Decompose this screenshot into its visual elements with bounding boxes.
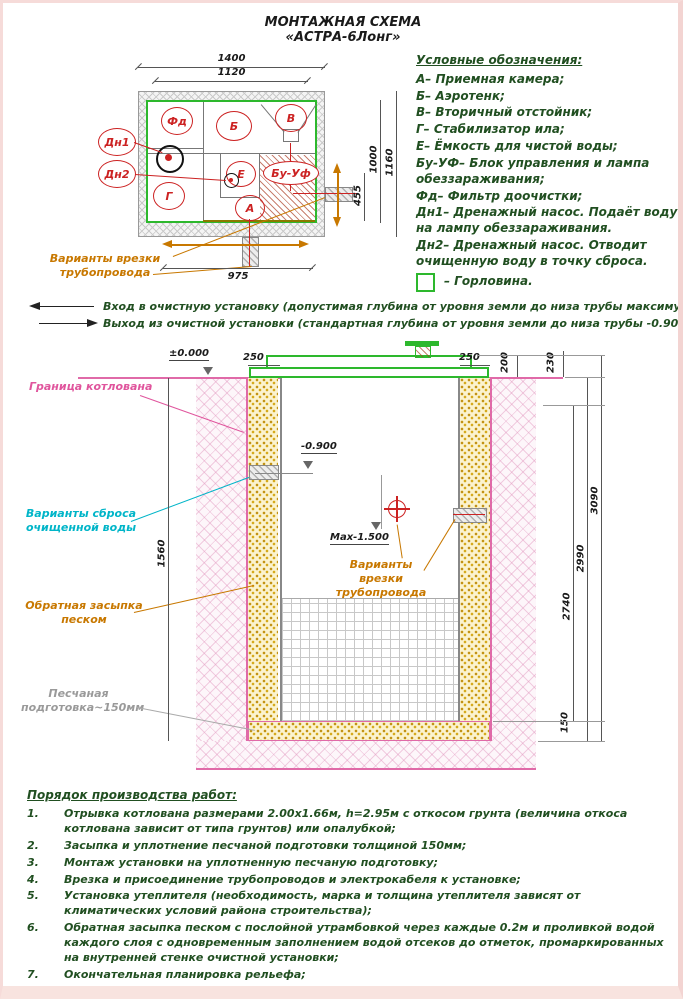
work-order-item: 1. Отрывка котлована размерами 2.00х1.66… — [27, 807, 667, 837]
dim-150: 150 — [560, 703, 571, 743]
dim-2740: 2740 — [562, 587, 573, 627]
label-sand-bed: Песчаная подготовка~150мм — [21, 687, 136, 715]
plan-pipe-stub-bottom — [242, 237, 259, 267]
legend-gorlovina-text: – Горловина. — [444, 274, 533, 290]
plan-pump2-dot — [229, 178, 233, 182]
label-sand-backfill: Обратная засыпка песком — [25, 599, 143, 627]
dim-tick — [304, 77, 311, 84]
level-mark-icon — [371, 522, 381, 530]
dim-1000: 1000 — [369, 140, 380, 180]
legend: Условные обозначения: А– Приемная камера… — [416, 53, 680, 292]
section-max-depth-ref-line — [381, 475, 382, 529]
item-text: Обратная засыпка песком с послойной утра… — [64, 921, 667, 966]
plan-callout-pipe-entry: Варианты врезки трубопровода — [35, 252, 175, 280]
section-tank-bottom-grid — [282, 598, 458, 721]
dim-line-2990 — [587, 377, 588, 741]
arrow-up-icon — [333, 163, 341, 173]
legend-item: Дн1– Дренажный насос. Подаёт воду на лам… — [416, 205, 680, 237]
legend-item: В– Вторичный отстойник; — [416, 105, 680, 121]
installation-scheme-page: МОНТАЖНАЯ СХЕМА «АСТРА-6Лонг» Фд Б В Г Е… — [0, 0, 683, 999]
plan-arrow-vert-line — [337, 170, 339, 219]
pipe-entry-crosshair-icon — [388, 500, 406, 518]
legend-item: Г– Стабилизатор ила; — [416, 122, 680, 138]
ext-line-ground — [565, 377, 605, 378]
dim-250-right: 250 — [459, 352, 480, 363]
legend-gorlovina-row: – Горловина. — [416, 273, 680, 292]
plan-label-a: А — [235, 195, 265, 221]
dim-line-250-right — [460, 365, 490, 366]
plan-label-a-text: А — [246, 202, 255, 215]
work-order-item: 7. Окончательная планировка рельефа; — [27, 968, 667, 983]
dim-455: 455 — [353, 176, 364, 216]
ext-line-lid-top — [477, 355, 605, 356]
outlet-note: Выход из очистной установки (стандартная… — [103, 317, 683, 330]
label-pit-boundary: Граница котлована — [29, 380, 152, 394]
work-order-title: Порядок производства работ: — [27, 787, 667, 803]
item-number: 6. — [27, 921, 64, 966]
plan-label-g: Г — [153, 182, 185, 210]
dim-line-3090 — [601, 355, 602, 741]
dim-tick — [321, 63, 328, 70]
plan-label-dn1: Дн1 — [98, 128, 136, 156]
section-soil-right — [490, 378, 536, 770]
ext-line-tank-bottom — [493, 721, 605, 722]
item-text: Отрывка котлована размерами 2.00х1.66м, … — [64, 807, 667, 837]
outlet-arrow-icon — [87, 319, 98, 327]
plan-label-buuf-text: Бу-Уф — [271, 167, 311, 180]
dim-975: 975 — [163, 271, 313, 282]
dim-line-200 — [517, 355, 518, 377]
dim-3090: 3090 — [590, 481, 601, 521]
work-order-item: 6. Обратная засыпка песком с послойной у… — [27, 921, 667, 966]
level-max-1500: Max-1.500 — [330, 532, 389, 545]
dim-1160: 1160 — [385, 143, 396, 183]
section-inlet-pipe-axis — [453, 514, 485, 515]
legend-item: Бу-УФ– Блок управления и лампа обеззараж… — [416, 156, 680, 188]
inlet-note: Вход в очистную установку (допустимая гл… — [103, 300, 683, 313]
item-number: 5. — [27, 889, 64, 919]
dim-230: 230 — [546, 343, 557, 383]
item-number: 1. — [27, 807, 64, 837]
plan-label-v: В — [275, 104, 307, 132]
level-mark-icon — [303, 461, 313, 469]
dim-line-2740 — [573, 405, 574, 721]
ext-line-lid-bottom — [543, 405, 605, 406]
plan-pump1-dot — [165, 154, 172, 161]
item-text: Врезка и присоединение трубопроводов и э… — [64, 873, 667, 888]
item-text: Установка утеплителя (необходимость, мар… — [64, 889, 667, 919]
section-sand-bed — [248, 721, 490, 741]
outlet-arrow-line — [39, 323, 87, 325]
legend-item: Е– Ёмкость для чистой воды; — [416, 139, 680, 155]
plan-pipe-line-right — [293, 193, 357, 194]
work-order-item: 4. Врезка и присоединение трубопроводов … — [27, 873, 667, 888]
plan-label-g-text: Г — [165, 190, 172, 203]
plan-label-dn2-text: Дн2 — [104, 168, 129, 181]
page-title: МОНТАЖНАЯ СХЕМА «АСТРА-6Лонг» — [243, 15, 443, 45]
section-inlet-pipe-stub — [453, 508, 487, 523]
ext-line-sand-bottom — [538, 741, 605, 742]
label-pipe-entry-options: Варианты врезки трубопровода — [333, 558, 429, 599]
arrow-right-icon — [299, 240, 309, 248]
dim-line-1560 — [168, 378, 169, 741]
label-discharge-options: Варианты сброса очищенной воды — [25, 507, 137, 535]
plan-label-fd-text: Фд — [167, 115, 187, 128]
item-number: 4. — [27, 873, 64, 888]
plan-label-dn2: Дн2 — [98, 160, 136, 188]
section-outlet-ref-line — [255, 473, 313, 474]
plan-arrow-span-line — [170, 244, 301, 246]
inlet-arrow-line — [39, 306, 94, 308]
neck-symbol-icon — [416, 273, 435, 292]
legend-title: Условные обозначения: — [416, 53, 680, 69]
plan-label-b: Б — [216, 111, 252, 141]
work-order-item: 3. Монтаж установки на уплотненную песча… — [27, 856, 667, 871]
section-tank-wall-right — [458, 378, 460, 721]
dim-line-1160 — [396, 91, 397, 237]
legend-item: Дн2– Дренажный насос. Отводит очищенную … — [416, 238, 680, 270]
work-order-item: 8. Запуск очистной установки в эксплуата… — [27, 984, 667, 999]
item-text: Окончательная планировка рельефа; — [64, 968, 667, 983]
plan-pipe-stub-right — [325, 187, 353, 202]
section-backfill-left — [248, 378, 278, 721]
item-number: 7. — [27, 968, 64, 983]
section-soil-left — [196, 378, 248, 770]
dim-line-250-left — [248, 365, 280, 366]
dim-line-975 — [163, 268, 313, 269]
dim-2990: 2990 — [576, 539, 587, 579]
section-lid-top — [266, 355, 472, 369]
plan-label-buuf: Бу-Уф — [263, 161, 319, 185]
work-order-item: 5. Установка утеплителя (необходимость, … — [27, 889, 667, 919]
section-backfill-right — [460, 378, 490, 721]
work-order-item: 2. Засыпка и уплотнение песчаной подгото… — [27, 839, 667, 854]
arrow-down-icon — [333, 217, 341, 227]
level-minus-0900: -0.900 — [301, 441, 337, 454]
work-order: Порядок производства работ: 1. Отрывка к… — [27, 787, 667, 999]
page-title-line1: МОНТАЖНАЯ СХЕМА — [243, 15, 443, 30]
item-text: Засыпка и уплотнение песчаной подготовки… — [64, 839, 667, 854]
dim-1400: 1400 — [138, 53, 325, 64]
level-zero: ±0.000 — [169, 348, 209, 361]
item-text: Запуск очистной установки в эксплуатацию… — [64, 984, 667, 999]
dim-200: 200 — [500, 343, 511, 383]
section-soil-bottom — [196, 741, 536, 770]
legend-item: Фд– Фильтр доочистки; — [416, 189, 680, 205]
arrow-left-icon — [162, 240, 172, 248]
item-text: Монтаж установки на уплотненную песчаную… — [64, 856, 667, 871]
page-title-line2: «АСТРА-6Лонг» — [243, 30, 443, 45]
plan-label-dn1-text: Дн1 — [104, 136, 129, 149]
legend-item: Б– Аэротенк; — [416, 89, 680, 105]
level-mark-icon — [203, 367, 213, 375]
dim-line-1120 — [155, 81, 308, 82]
dim-1560: 1560 — [157, 534, 168, 574]
plan-label-b-text: Б — [230, 120, 238, 133]
item-number: 2. — [27, 839, 64, 854]
dim-line-455 — [364, 173, 365, 221]
dim-250-left: 250 — [243, 352, 264, 363]
plan-partition-vertical — [203, 102, 204, 221]
legend-item: А– Приемная камера; — [416, 72, 680, 88]
dim-1120: 1120 — [155, 67, 308, 78]
plan-label-fd: Фд — [161, 107, 193, 135]
item-number: 8. — [27, 984, 64, 999]
item-number: 3. — [27, 856, 64, 871]
dim-line-1000 — [380, 100, 381, 223]
section-vent-stem — [415, 346, 431, 358]
plan-label-v-text: В — [287, 112, 295, 125]
